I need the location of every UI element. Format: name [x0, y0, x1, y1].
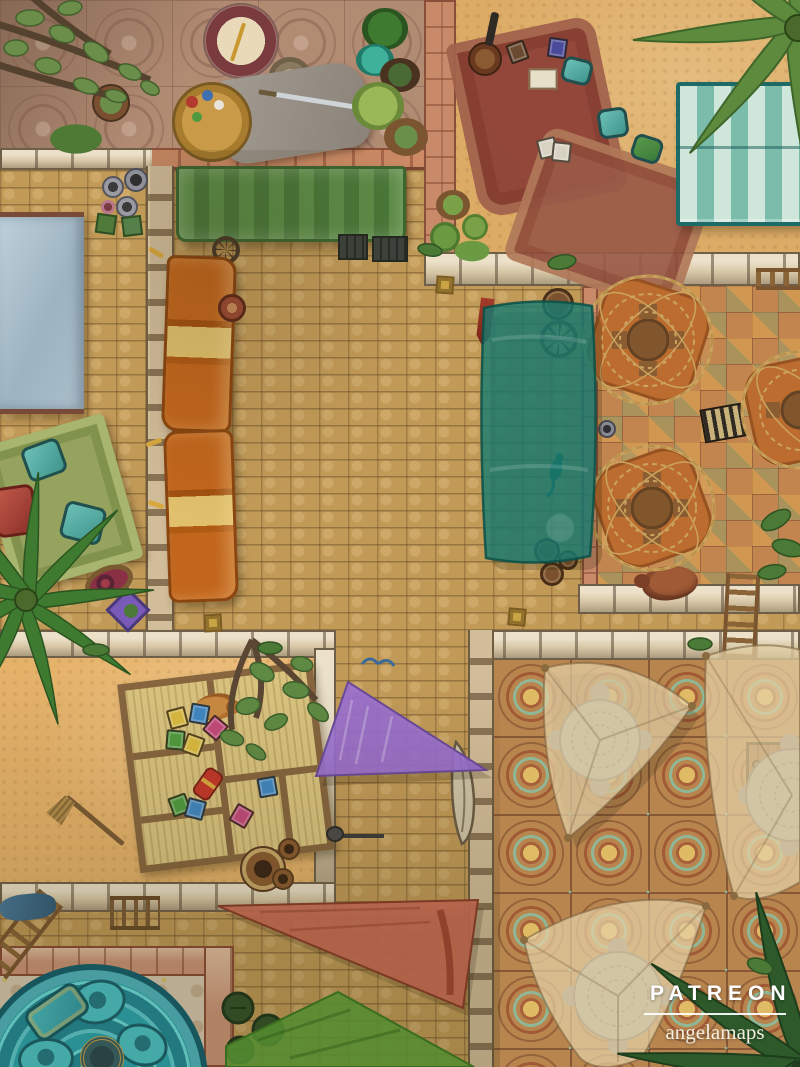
foliage-layer	[0, 0, 800, 1067]
palm-tree	[0, 472, 154, 728]
watermark-brand: PATREON	[644, 982, 786, 1006]
watermark: PATREON angelamaps	[644, 982, 786, 1045]
fern-tuft	[83, 242, 800, 977]
classroom-tree	[218, 640, 331, 763]
battle-map: PATREON angelamaps	[0, 0, 800, 1067]
palm-tree	[633, 0, 800, 193]
watermark-subtitle: angelamaps	[644, 1020, 786, 1045]
watermark-divider	[644, 1013, 786, 1015]
overhanging-tree	[0, 0, 162, 105]
